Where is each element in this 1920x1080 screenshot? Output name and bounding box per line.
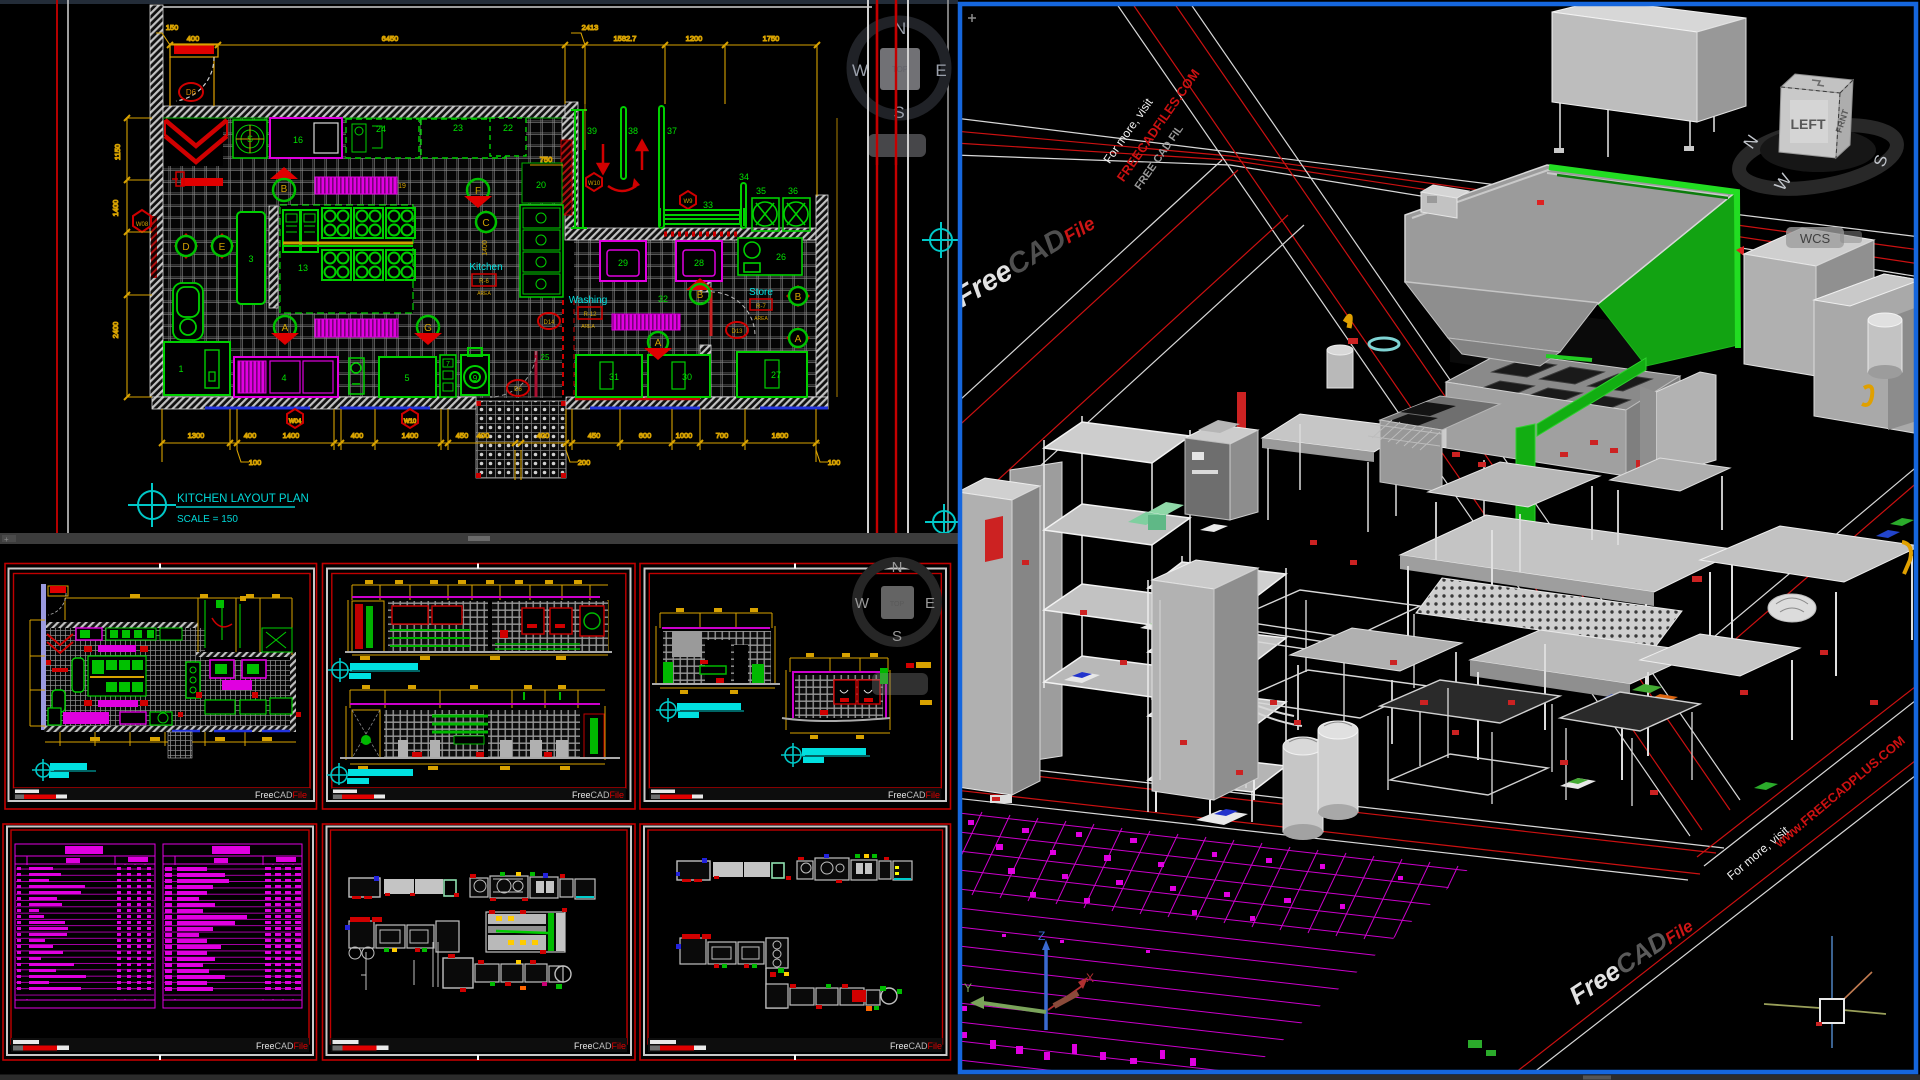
svg-text:E: E [219, 242, 226, 253]
svg-text:26: 26 [776, 252, 786, 262]
svg-text:Y: Y [964, 981, 972, 995]
svg-text:6450: 6450 [382, 34, 399, 43]
svg-text:Kitchen: Kitchen [469, 262, 502, 273]
svg-text:450: 450 [588, 431, 601, 440]
svg-text:1: 1 [178, 364, 183, 374]
svg-text:32: 32 [658, 294, 668, 304]
svg-text:1200: 1200 [686, 34, 703, 43]
svg-text:400: 400 [351, 431, 364, 440]
svg-text:AREA: AREA [477, 291, 491, 297]
svg-text:TOP: TOP [890, 601, 905, 608]
svg-text:LEFT: LEFT [1791, 116, 1826, 132]
svg-text:24: 24 [376, 124, 386, 134]
svg-text:400: 400 [187, 34, 200, 43]
svg-text:D13: D13 [731, 329, 743, 335]
svg-text:FreeCADFile: FreeCADFile [574, 1041, 626, 1051]
svg-text:37: 37 [667, 126, 677, 136]
svg-text:G: G [424, 323, 432, 334]
svg-text:2413: 2413 [582, 23, 599, 32]
svg-text:200: 200 [578, 458, 591, 467]
svg-text:D6: D6 [186, 88, 197, 97]
svg-text:R-6: R-6 [479, 279, 489, 285]
svg-text:1300: 1300 [188, 431, 205, 440]
svg-text:600: 600 [639, 431, 652, 440]
svg-text:450: 450 [456, 431, 469, 440]
svg-text:A: A [795, 334, 802, 345]
svg-text:23: 23 [453, 123, 463, 133]
svg-text:7: 7 [446, 361, 450, 368]
svg-text:X: X [1086, 971, 1094, 985]
svg-text:28: 28 [694, 258, 704, 268]
svg-text:25: 25 [541, 353, 550, 362]
svg-text:34: 34 [739, 172, 749, 182]
svg-text:S: S [247, 134, 253, 144]
svg-text:FreeCADFile: FreeCADFile [890, 1041, 942, 1051]
svg-text:36: 36 [788, 186, 798, 196]
svg-text:1400: 1400 [402, 431, 419, 440]
svg-text:B: B [697, 290, 704, 301]
svg-text:30: 30 [682, 372, 692, 382]
svg-text:1150: 1150 [113, 144, 122, 160]
svg-text:1400: 1400 [111, 200, 120, 217]
svg-text:20: 20 [536, 180, 546, 190]
svg-text:E: E [935, 61, 946, 80]
svg-text:1600: 1600 [772, 431, 789, 440]
svg-text:FreeCADFile: FreeCADFile [256, 1041, 308, 1051]
svg-text:F: F [475, 186, 481, 197]
svg-text:1400: 1400 [482, 240, 489, 256]
svg-text:400: 400 [537, 431, 550, 440]
svg-text:R-7: R-7 [756, 304, 766, 310]
svg-text:R-12: R-12 [583, 312, 597, 318]
svg-text:38: 38 [628, 126, 638, 136]
svg-text:1400: 1400 [283, 431, 300, 440]
svg-text:D: D [182, 242, 189, 253]
svg-text:400: 400 [244, 431, 257, 440]
svg-text:W04: W04 [289, 419, 302, 425]
svg-text:W: W [855, 595, 870, 612]
svg-text:100: 100 [828, 458, 841, 467]
svg-text:KITCHEN LAYOUT PLAN: KITCHEN LAYOUT PLAN [177, 493, 309, 505]
svg-text:19: 19 [398, 183, 406, 190]
svg-text:N: N [892, 559, 903, 576]
svg-text:13: 13 [298, 263, 308, 273]
svg-text:1000: 1000 [676, 431, 693, 440]
svg-text:A: A [655, 338, 662, 349]
svg-text:4: 4 [281, 373, 286, 383]
svg-text:D6: D6 [514, 387, 522, 393]
svg-text:WCS: WCS [1800, 231, 1831, 246]
svg-text:W: W [852, 61, 868, 80]
svg-text:29: 29 [618, 258, 628, 268]
svg-text:SCALE = 150: SCALE = 150 [177, 514, 238, 525]
svg-text:+: + [4, 535, 9, 544]
svg-text:FreeCADFile: FreeCADFile [255, 790, 307, 800]
svg-text:Washing: Washing [569, 295, 608, 306]
svg-text:39: 39 [587, 126, 597, 136]
svg-text:2400: 2400 [111, 322, 120, 339]
svg-text:B: B [795, 292, 802, 303]
svg-text:5: 5 [404, 373, 409, 383]
svg-text:100: 100 [249, 458, 262, 467]
svg-text:1750: 1750 [763, 34, 780, 43]
svg-text:FreeCADFile: FreeCADFile [888, 790, 940, 800]
svg-text:22: 22 [503, 123, 513, 133]
svg-text:3: 3 [248, 254, 253, 264]
svg-text:A: A [282, 323, 289, 334]
svg-text:Z: Z [1038, 929, 1045, 943]
svg-text:AREA: AREA [581, 324, 595, 330]
svg-text:35: 35 [756, 186, 766, 196]
svg-text:700: 700 [716, 431, 729, 440]
svg-text:AREA: AREA [754, 316, 768, 322]
svg-text:750: 750 [540, 155, 553, 164]
svg-text:33: 33 [703, 200, 713, 210]
svg-text:16: 16 [293, 135, 303, 145]
svg-text:31: 31 [609, 372, 619, 382]
svg-text:Store: Store [749, 287, 773, 298]
svg-text:1582.7: 1582.7 [614, 34, 637, 43]
svg-text:FreeCADFile: FreeCADFile [572, 790, 624, 800]
svg-text:9: 9 [473, 374, 478, 383]
svg-text:W10: W10 [404, 419, 417, 425]
svg-text:C: C [482, 218, 489, 229]
svg-text:W9: W9 [684, 199, 694, 205]
svg-text:B: B [281, 184, 288, 195]
svg-text:W08: W08 [136, 222, 149, 228]
svg-text:E: E [925, 595, 935, 612]
svg-text:W10: W10 [588, 181, 601, 187]
svg-text:27: 27 [771, 370, 781, 380]
svg-text:150: 150 [166, 23, 179, 32]
svg-text:400: 400 [477, 431, 490, 440]
svg-text:S: S [892, 628, 902, 645]
svg-text:TOP: TOP [892, 65, 908, 74]
svg-text:D14: D14 [543, 320, 555, 326]
